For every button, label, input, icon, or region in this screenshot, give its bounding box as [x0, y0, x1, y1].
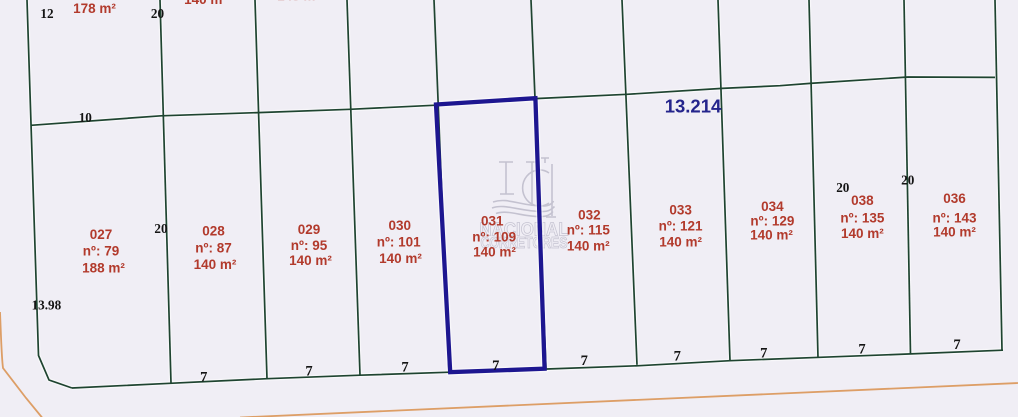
- svg-text:178 m²: 178 m²: [73, 1, 116, 16]
- svg-text:140 m²: 140 m²: [473, 244, 516, 259]
- svg-text:12: 12: [40, 6, 54, 21]
- svg-text:027: 027: [90, 227, 113, 242]
- svg-text:140 m²: 140 m²: [289, 253, 332, 268]
- svg-text:nº: 79: nº: 79: [83, 244, 119, 259]
- svg-text:nº: 121: nº: 121: [659, 218, 703, 233]
- svg-text:140 m²: 140 m²: [659, 235, 702, 250]
- svg-text:140 m²: 140 m²: [379, 251, 422, 266]
- svg-text:140 m²: 140 m²: [841, 226, 884, 241]
- svg-text:7: 7: [760, 345, 767, 361]
- svg-text:029: 029: [298, 222, 321, 237]
- svg-text:nº: 109: nº: 109: [472, 230, 516, 245]
- svg-text:7: 7: [674, 349, 681, 365]
- svg-text:20: 20: [151, 6, 165, 21]
- svg-text:033: 033: [669, 203, 692, 218]
- svg-text:7: 7: [200, 370, 207, 386]
- svg-text:028: 028: [202, 224, 225, 239]
- svg-text:10: 10: [79, 110, 93, 125]
- svg-text:7: 7: [305, 364, 312, 380]
- svg-text:038: 038: [851, 193, 874, 208]
- svg-text:20: 20: [154, 221, 168, 236]
- svg-text:7: 7: [492, 358, 499, 374]
- svg-text:nº: 95: nº: 95: [291, 238, 328, 253]
- svg-text:140 m²: 140 m²: [194, 257, 237, 272]
- svg-text:13.98: 13.98: [32, 297, 62, 312]
- svg-text:20: 20: [836, 180, 850, 195]
- svg-text:20: 20: [901, 173, 915, 188]
- svg-text:nº: 135: nº: 135: [840, 210, 884, 225]
- svg-text:140 m²: 140 m²: [567, 239, 610, 254]
- svg-text:031: 031: [481, 214, 504, 229]
- svg-text:7: 7: [581, 353, 588, 369]
- svg-text:7: 7: [953, 337, 960, 353]
- svg-text:140 m²: 140 m²: [277, 0, 320, 4]
- svg-text:188 m²: 188 m²: [82, 260, 125, 275]
- svg-text:030: 030: [389, 218, 412, 233]
- svg-text:nº: 87: nº: 87: [195, 241, 231, 256]
- svg-text:7: 7: [858, 342, 865, 358]
- svg-text:140 m²: 140 m²: [184, 0, 227, 7]
- svg-text:036: 036: [943, 191, 966, 206]
- svg-text:nº: 101: nº: 101: [377, 234, 421, 249]
- svg-text:nº: 115: nº: 115: [567, 222, 611, 237]
- svg-text:nº: 143: nº: 143: [933, 210, 977, 225]
- svg-text:7: 7: [401, 360, 408, 376]
- svg-text:140 m²: 140 m²: [933, 224, 976, 239]
- svg-text:13.214: 13.214: [665, 96, 722, 117]
- svg-text:034: 034: [761, 199, 784, 214]
- svg-text:032: 032: [578, 207, 601, 222]
- svg-text:140 m²: 140 m²: [750, 227, 793, 242]
